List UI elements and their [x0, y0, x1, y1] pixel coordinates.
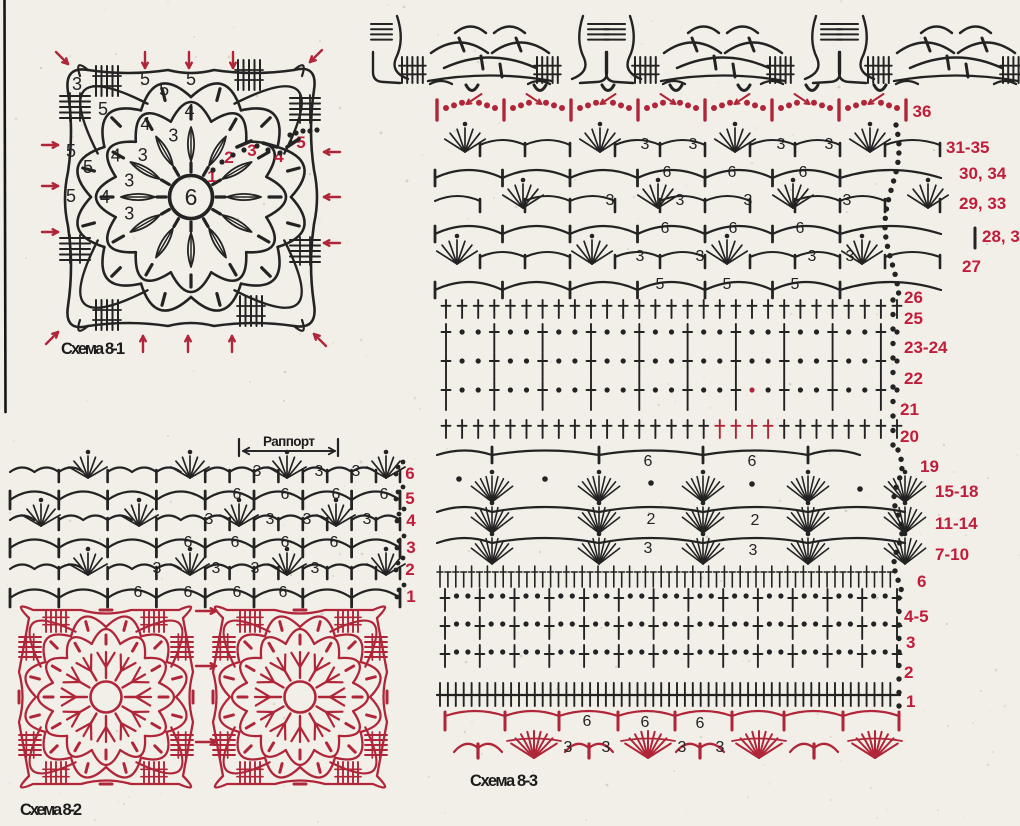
svg-text:3: 3: [602, 739, 611, 756]
svg-text:6: 6: [279, 584, 288, 601]
svg-text:Схема 8-3: Схема 8-3: [470, 772, 538, 790]
svg-text:2: 2: [904, 663, 913, 682]
svg-text:3: 3: [716, 739, 725, 756]
svg-text:6: 6: [330, 534, 339, 551]
svg-text:30, 34: 30, 34: [959, 164, 1007, 183]
svg-text:Раппорт: Раппорт: [263, 434, 315, 449]
svg-text:5: 5: [656, 276, 665, 293]
svg-text:2: 2: [405, 560, 414, 579]
svg-text:3: 3: [153, 560, 162, 577]
svg-text:28, 32: 28, 32: [982, 227, 1020, 246]
svg-text:3: 3: [303, 511, 312, 528]
svg-text:6: 6: [185, 184, 198, 210]
svg-text:3: 3: [138, 145, 148, 165]
svg-text:3: 3: [311, 560, 320, 577]
svg-text:3: 3: [205, 511, 214, 528]
svg-text:3: 3: [363, 511, 372, 528]
svg-text:Схема 8-1: Схема 8-1: [61, 340, 125, 358]
svg-text:3: 3: [846, 248, 855, 265]
svg-text:3: 3: [906, 633, 915, 652]
svg-text:6: 6: [728, 164, 737, 181]
svg-text:6: 6: [184, 584, 193, 601]
svg-text:6: 6: [661, 220, 670, 237]
svg-text:11-14: 11-14: [935, 514, 978, 533]
svg-text:6: 6: [380, 486, 389, 503]
svg-text:3: 3: [352, 463, 361, 480]
svg-text:3: 3: [825, 136, 834, 153]
svg-text:5: 5: [791, 276, 800, 293]
svg-text:3: 3: [72, 74, 82, 94]
svg-text:5: 5: [296, 133, 305, 152]
svg-text:3: 3: [266, 511, 275, 528]
svg-text:3: 3: [564, 739, 573, 756]
svg-text:3: 3: [636, 248, 645, 265]
svg-text:1: 1: [406, 587, 415, 606]
svg-text:4: 4: [100, 187, 110, 207]
svg-text:3: 3: [315, 463, 324, 480]
svg-text:3: 3: [808, 248, 817, 265]
svg-text:6: 6: [405, 464, 414, 483]
svg-text:5: 5: [83, 157, 93, 177]
svg-text:6: 6: [663, 164, 672, 181]
svg-text:3: 3: [749, 542, 758, 559]
svg-text:6: 6: [917, 572, 926, 591]
svg-text:5: 5: [186, 69, 196, 89]
svg-text:2: 2: [751, 512, 760, 529]
svg-text:3: 3: [644, 540, 653, 557]
svg-text:3: 3: [696, 248, 705, 265]
svg-text:6: 6: [748, 453, 757, 470]
svg-text:3: 3: [124, 204, 134, 224]
svg-text:Схема 8-2: Схема 8-2: [20, 801, 82, 819]
svg-text:5: 5: [66, 141, 76, 161]
svg-text:21: 21: [900, 400, 919, 419]
svg-text:3: 3: [212, 560, 221, 577]
svg-text:3: 3: [124, 170, 134, 190]
svg-text:29, 33: 29, 33: [959, 194, 1006, 213]
svg-text:19: 19: [920, 457, 939, 476]
svg-text:3: 3: [251, 560, 260, 577]
svg-text:6: 6: [641, 714, 650, 731]
svg-text:7-10: 7-10: [935, 545, 969, 564]
svg-text:6: 6: [729, 220, 738, 237]
svg-text:25: 25: [904, 309, 923, 328]
svg-text:31-35: 31-35: [946, 138, 989, 157]
svg-text:4: 4: [406, 511, 416, 530]
svg-text:15-18: 15-18: [935, 482, 978, 501]
svg-text:1: 1: [906, 692, 915, 711]
svg-text:5: 5: [140, 69, 150, 89]
svg-text:6: 6: [799, 164, 808, 181]
svg-text:3: 3: [689, 136, 698, 153]
svg-text:5: 5: [405, 489, 414, 508]
svg-text:3: 3: [843, 192, 852, 209]
svg-text:4: 4: [111, 145, 121, 165]
svg-text:3: 3: [253, 463, 262, 480]
svg-text:2: 2: [647, 511, 656, 528]
svg-text:5: 5: [159, 79, 169, 99]
svg-text:6: 6: [281, 486, 290, 503]
svg-text:6: 6: [796, 220, 805, 237]
svg-text:5: 5: [723, 276, 732, 293]
svg-text:27: 27: [962, 257, 981, 276]
svg-text:4-5: 4-5: [904, 607, 929, 626]
svg-text:3: 3: [168, 126, 178, 146]
svg-text:5: 5: [98, 99, 108, 119]
svg-text:6: 6: [231, 534, 240, 551]
svg-text:3: 3: [606, 192, 615, 209]
svg-text:26: 26: [904, 288, 923, 307]
svg-text:5: 5: [66, 186, 76, 206]
svg-text:6: 6: [134, 584, 143, 601]
svg-text:6: 6: [644, 453, 653, 470]
svg-text:3: 3: [678, 739, 687, 756]
svg-text:3: 3: [676, 192, 685, 209]
svg-text:3: 3: [777, 136, 786, 153]
svg-text:3: 3: [406, 538, 415, 557]
svg-text:20: 20: [900, 427, 919, 446]
svg-text:6: 6: [233, 584, 242, 601]
svg-text:3: 3: [744, 192, 753, 209]
svg-text:4: 4: [274, 147, 284, 166]
svg-text:22: 22: [904, 369, 923, 388]
svg-text:4: 4: [184, 101, 194, 121]
svg-text:6: 6: [696, 715, 705, 732]
svg-text:6: 6: [583, 713, 592, 730]
svg-text:3: 3: [641, 136, 650, 153]
svg-text:4: 4: [140, 114, 150, 134]
svg-text:36: 36: [913, 102, 932, 121]
svg-text:23-24: 23-24: [904, 338, 948, 357]
